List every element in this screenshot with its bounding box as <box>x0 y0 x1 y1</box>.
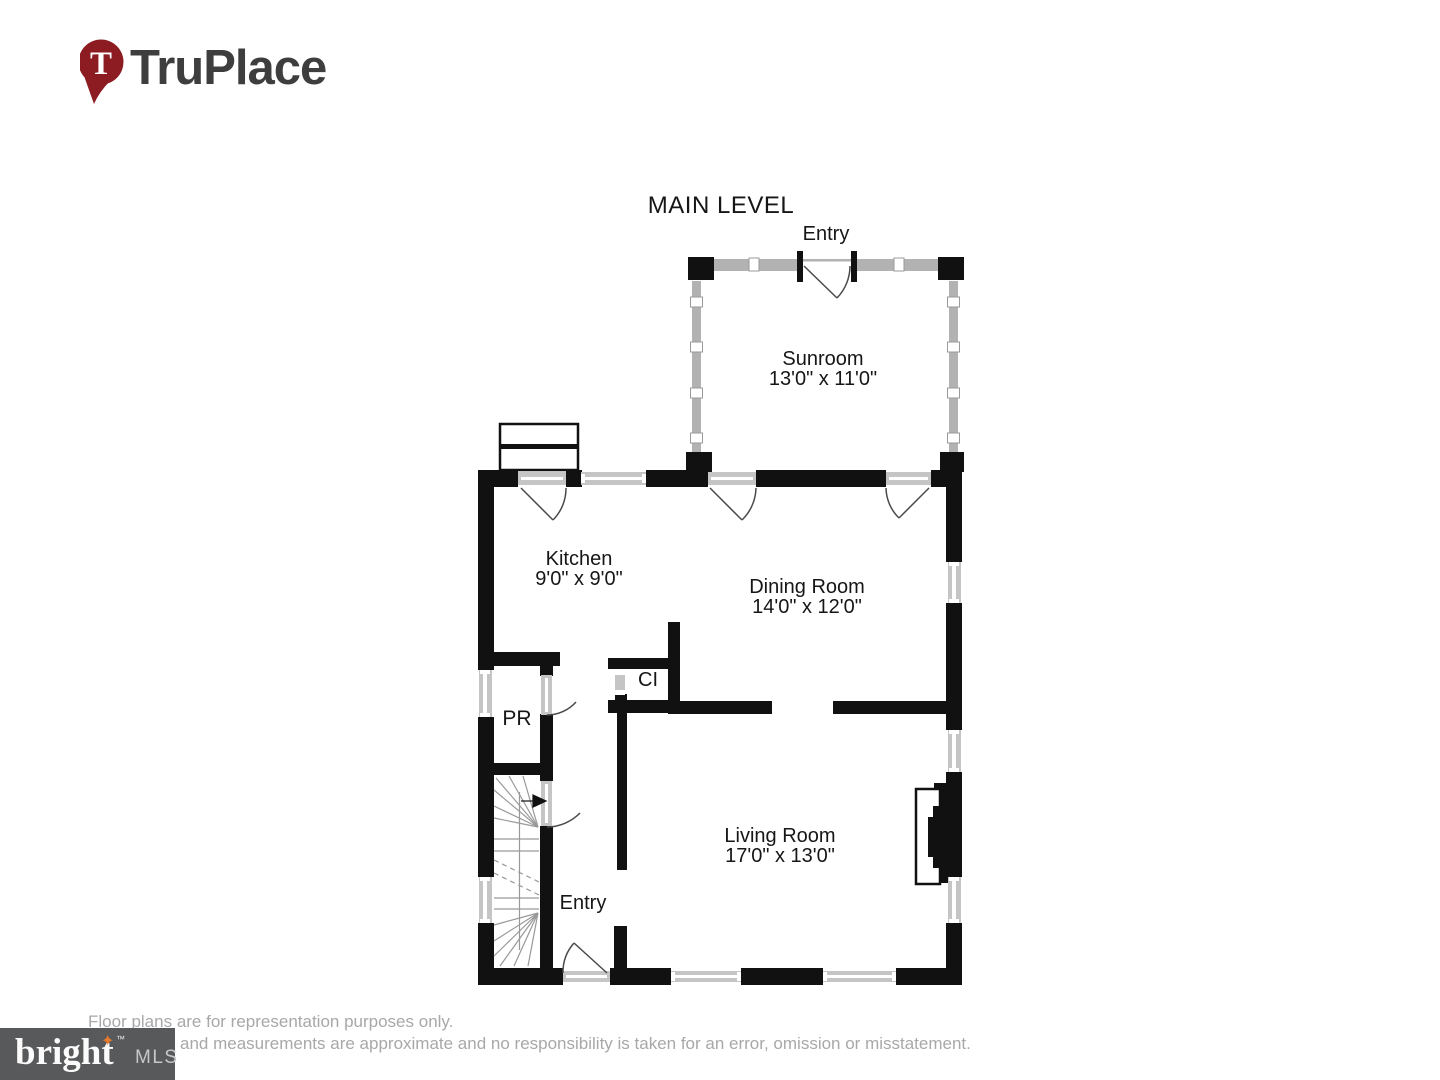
room-label-dining: Dining Room 14'0" x 12'0" <box>749 577 865 617</box>
label-entry-top: Entry <box>803 224 850 244</box>
room-label-sunroom: Sunroom 13'0" x 11'0" <box>769 349 877 389</box>
label-closet: CI <box>638 670 658 690</box>
room-name: Living Room <box>724 826 835 846</box>
room-dims: 14'0" x 12'0" <box>749 597 865 617</box>
room-name: Sunroom <box>769 349 877 369</box>
fireplace <box>916 783 948 884</box>
room-name: Dining Room <box>749 577 865 597</box>
room-label-kitchen: Kitchen 9'0" x 9'0" <box>535 549 622 589</box>
bright-trademark: ™ <box>116 1034 125 1044</box>
room-dims: 17'0" x 13'0" <box>724 846 835 866</box>
floorplan-page: T TruPlace <box>0 0 1440 1080</box>
bright-mls-text: MLS <box>135 1047 179 1069</box>
bright-mls-logo: bright ✦ ™ MLS <box>0 1028 175 1080</box>
bright-wordmark: bright <box>15 1031 114 1074</box>
disclaimer-line-2: and measurements are approximate and no … <box>180 1035 971 1052</box>
room-dims: 9'0" x 9'0" <box>535 569 622 589</box>
staircase <box>494 776 546 966</box>
bright-star-icon: ✦ <box>101 1031 114 1051</box>
room-dims: 13'0" x 11'0" <box>769 369 877 389</box>
room-name: Kitchen <box>535 549 622 569</box>
exterior-steps <box>500 424 578 470</box>
label-powder-room: PR <box>502 709 531 729</box>
interior-walls <box>492 622 947 985</box>
floorplan-drawing <box>0 0 1440 1080</box>
label-entry-bottom: Entry <box>560 893 607 913</box>
room-label-living: Living Room 17'0" x 13'0" <box>724 826 835 866</box>
page-title: MAIN LEVEL <box>648 196 794 216</box>
